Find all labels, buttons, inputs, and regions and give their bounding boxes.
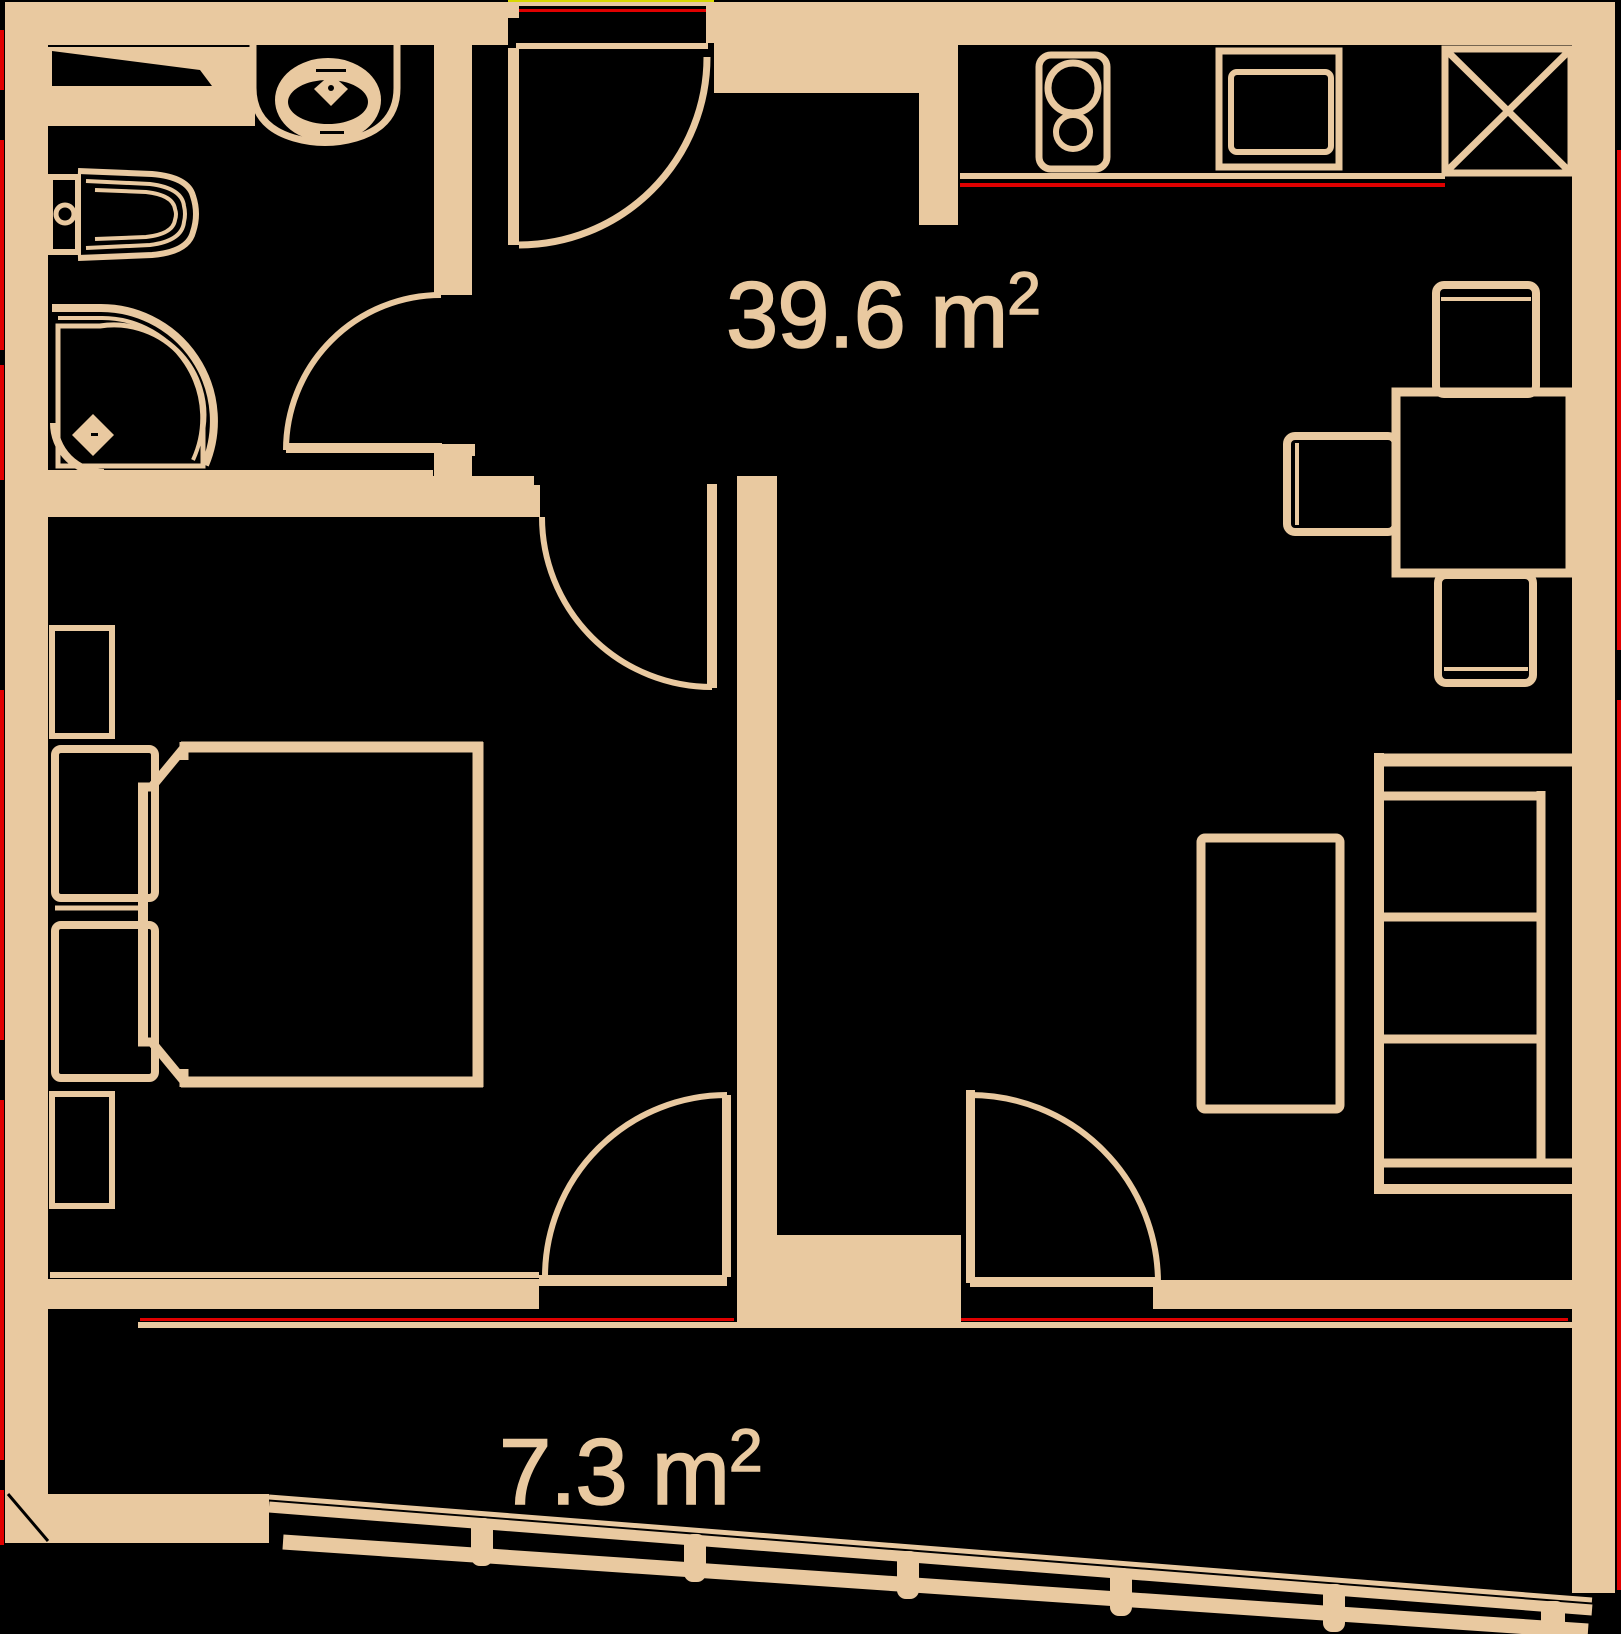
svg-text:39.6 m2: 39.6 m2 — [726, 260, 1040, 367]
svg-text:7.3 m2: 7.3 m2 — [499, 1417, 761, 1524]
